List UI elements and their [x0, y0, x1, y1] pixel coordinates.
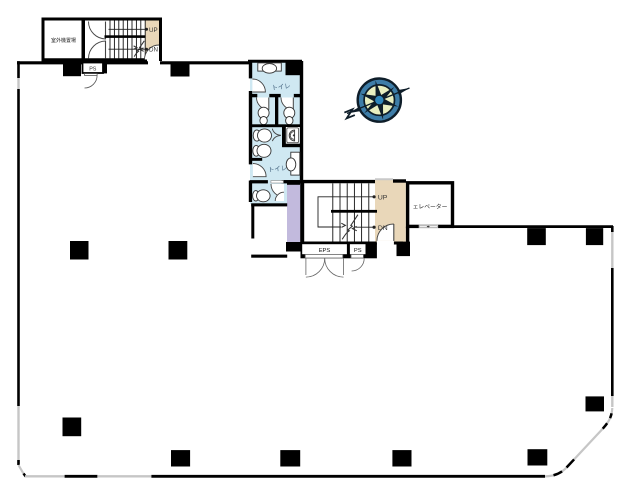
svg-text:PS: PS	[89, 66, 97, 72]
svg-text:UP: UP	[149, 27, 158, 34]
svg-text:EPS: EPS	[319, 248, 331, 254]
svg-text:室外機置場: 室外機置場	[51, 37, 76, 44]
svg-text:DN: DN	[149, 47, 158, 54]
svg-text:PS: PS	[354, 248, 362, 254]
svg-text:ェレベーター: ェレベーター	[413, 203, 448, 211]
svg-text:DN: DN	[378, 225, 388, 232]
svg-text:UP: UP	[378, 195, 388, 202]
